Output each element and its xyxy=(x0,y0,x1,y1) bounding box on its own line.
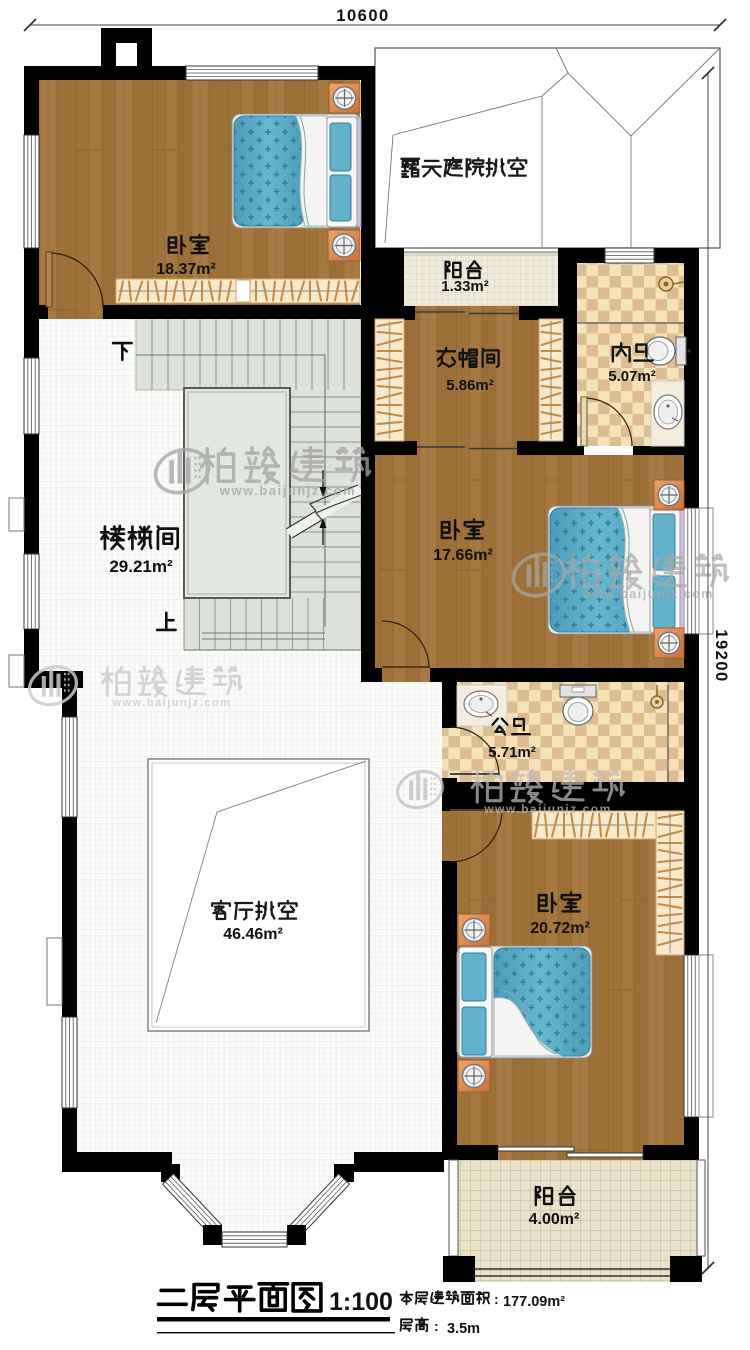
svg-text:1:100: 1:100 xyxy=(329,1288,393,1316)
svg-text:5.86m²: 5.86m² xyxy=(446,377,494,394)
svg-text:4.00m²: 4.00m² xyxy=(529,1211,580,1228)
svg-text:177.09m²: 177.09m² xyxy=(503,1294,565,1310)
svg-text::: : xyxy=(434,1318,439,1334)
svg-text:www.baijunjz.com: www.baijunjz.com xyxy=(581,587,714,601)
svg-text:20.72m²: 20.72m² xyxy=(530,920,590,937)
svg-text:www.baijunjz.com: www.baijunjz.com xyxy=(483,802,612,816)
svg-text:10600: 10600 xyxy=(336,7,389,25)
svg-text:5.71m²: 5.71m² xyxy=(488,744,536,761)
svg-text:19200: 19200 xyxy=(712,629,730,682)
svg-text:17.66m²: 17.66m² xyxy=(433,547,493,564)
svg-text:1.33m²: 1.33m² xyxy=(441,278,489,295)
svg-text:46.46m²: 46.46m² xyxy=(223,926,283,943)
svg-text:www.baijunjz.com: www.baijunjz.com xyxy=(219,483,356,498)
svg-text:5.07m²: 5.07m² xyxy=(608,368,656,385)
svg-text:18.37m²: 18.37m² xyxy=(156,261,216,278)
svg-text:29.21m²: 29.21m² xyxy=(109,557,173,576)
svg-text:3.5m: 3.5m xyxy=(447,1321,480,1337)
svg-text:www.baijunjz.com: www.baijunjz.com xyxy=(112,697,232,709)
svg-text::: : xyxy=(494,1291,499,1307)
